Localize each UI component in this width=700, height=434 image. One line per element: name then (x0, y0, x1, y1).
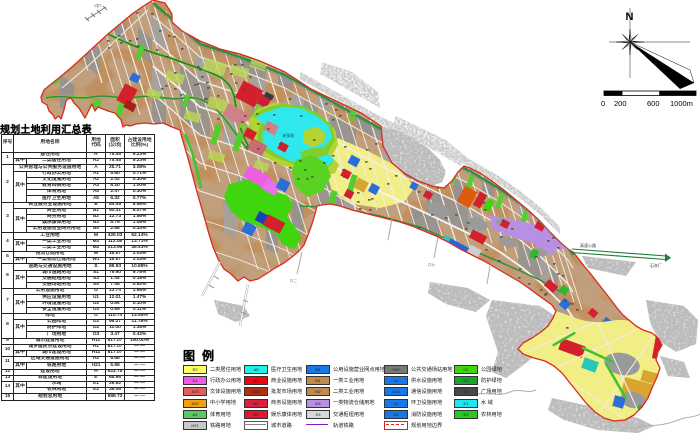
svg-text:N: N (626, 11, 634, 23)
svg-text:口七: 口七 (428, 262, 436, 267)
svg-text:600: 600 (647, 99, 660, 108)
svg-text:200: 200 (614, 99, 627, 108)
svg-text:高速公路: 高速公路 (580, 242, 596, 248)
svg-text:石灰厂: 石灰厂 (650, 262, 662, 268)
svg-text:1字7: 1字7 (94, 3, 101, 8)
svg-text:1000m: 1000m (670, 99, 693, 108)
svg-text:口二: 口二 (290, 279, 298, 283)
svg-text:0: 0 (601, 99, 605, 108)
svg-text:老泉湖: 老泉湖 (282, 133, 294, 138)
